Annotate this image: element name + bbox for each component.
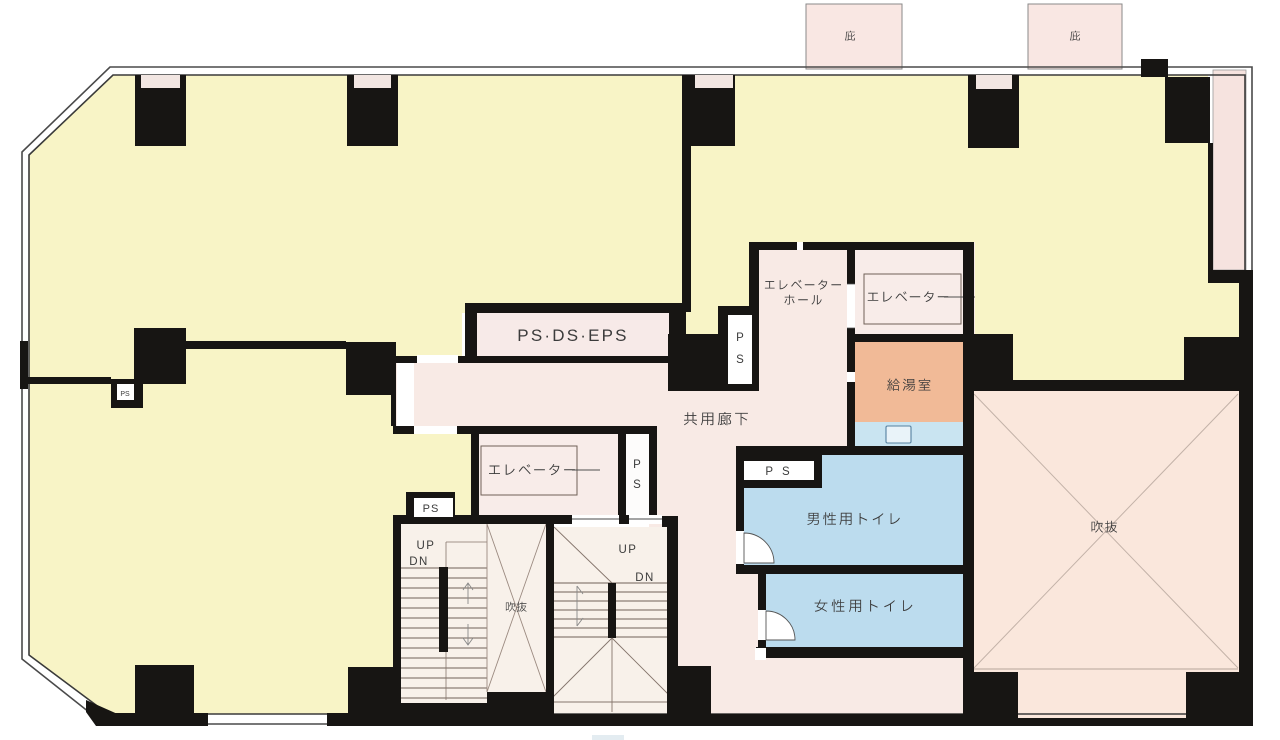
svg-text:UP: UP (619, 544, 638, 556)
svg-text:S: S (633, 479, 641, 491)
svg-text:P S: P S (765, 466, 792, 478)
svg-text:P: P (633, 459, 641, 471)
svg-text:PS: PS (120, 391, 130, 398)
svg-text:DN: DN (409, 556, 429, 568)
svg-text:UP: UP (417, 540, 436, 552)
svg-text:DN: DN (635, 572, 655, 584)
svg-text:P: P (736, 332, 744, 344)
svg-text:PS: PS (423, 503, 440, 515)
svg-text:S: S (736, 354, 744, 366)
svg-text:PS·DS·EPS: PS·DS·EPS (517, 326, 628, 345)
